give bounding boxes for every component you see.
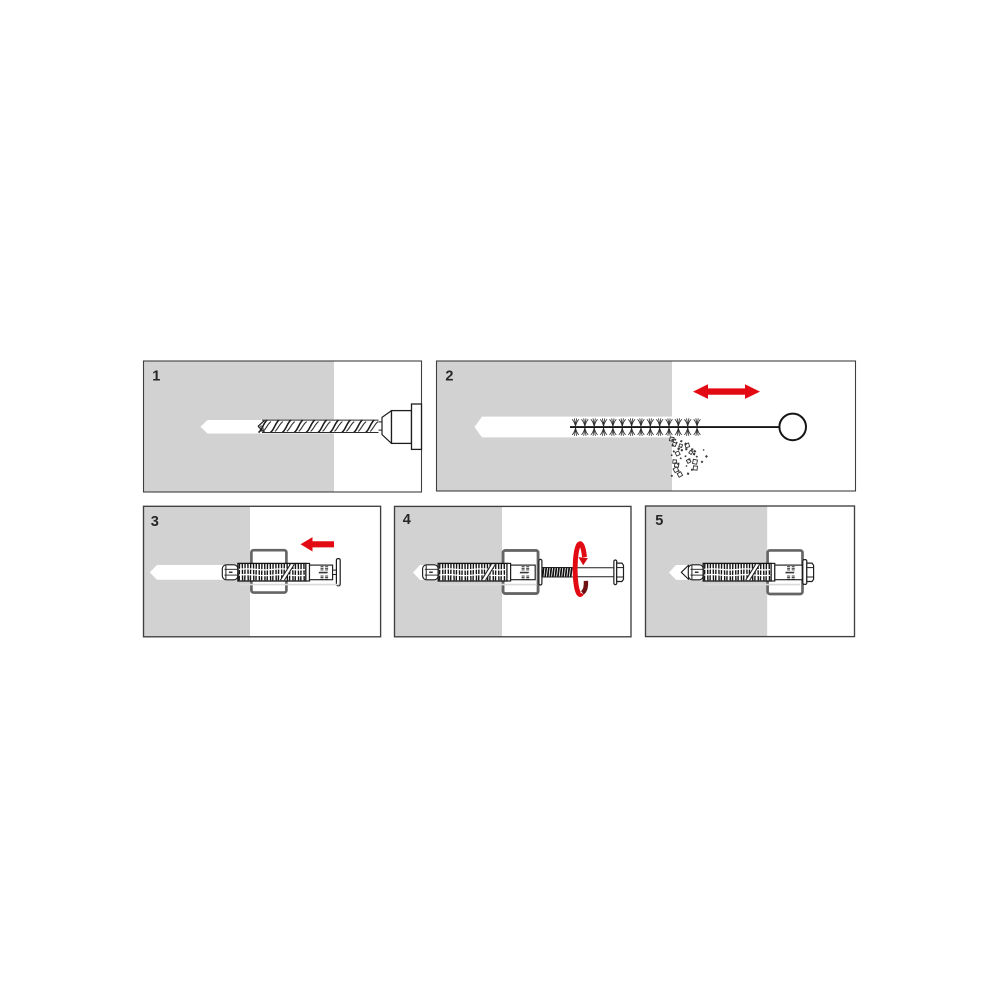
svg-text:1: 1 [152,368,160,384]
svg-text:3: 3 [151,514,159,530]
svg-text:5: 5 [655,513,663,529]
svg-text:4: 4 [403,512,411,528]
svg-text:2: 2 [445,368,453,384]
